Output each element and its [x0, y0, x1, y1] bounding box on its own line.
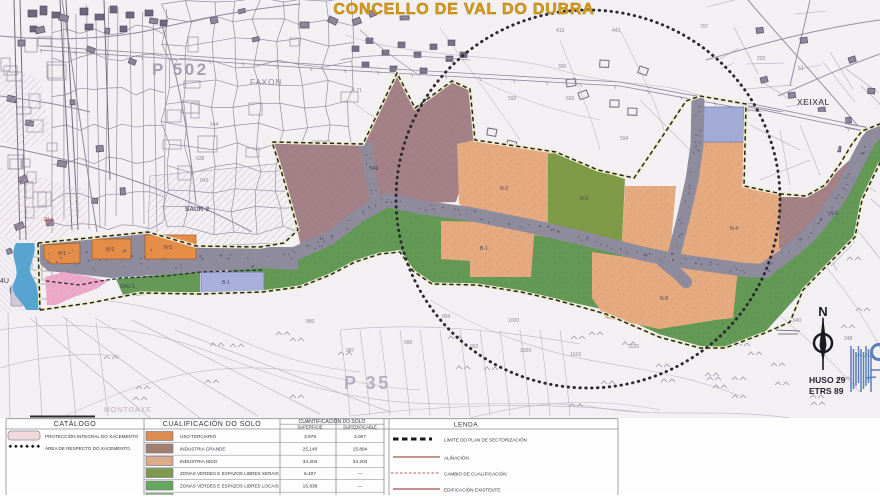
svg-text:4U: 4U	[0, 278, 9, 285]
svg-text:CATÁLOGO: CATÁLOGO	[54, 419, 96, 428]
svg-text:MONTOAXE: MONTOAXE	[104, 407, 152, 414]
svg-text:P 35: P 35	[344, 373, 391, 393]
svg-text:987: 987	[346, 348, 355, 354]
svg-text:Nº2: Nº2	[106, 247, 114, 253]
svg-text:SUP.EDIFICABLE: SUP.EDIFICABLE	[343, 424, 377, 429]
svg-text:8U: 8U	[44, 217, 53, 224]
svg-text:994: 994	[442, 314, 451, 320]
svg-text:SAU-1: SAU-1	[120, 284, 135, 290]
svg-text:Nº3: Nº3	[164, 245, 172, 251]
svg-text:INDUSTRIA NIDO: INDUSTRIA NIDO	[180, 459, 218, 464]
svg-text:SUPERFICIE: SUPERFICIE	[297, 424, 322, 429]
svg-text:HUSO 29: HUSO 29	[809, 375, 846, 385]
svg-text:34.203: 34.203	[303, 459, 318, 465]
svg-text:443: 443	[612, 28, 621, 34]
svg-text:P 502: P 502	[152, 60, 209, 79]
svg-text:3.979: 3.979	[304, 434, 316, 440]
svg-text:300: 300	[558, 64, 567, 70]
svg-text:592: 592	[508, 96, 517, 102]
svg-text:15.838: 15.838	[303, 484, 318, 490]
svg-text:Nº1: Nº1	[58, 251, 66, 257]
svg-text:707: 707	[700, 24, 709, 30]
svg-text:CONCELLO DE VAL DO DUBRA: CONCELLO DE VAL DO DUBRA	[333, 1, 594, 18]
svg-text:ÁREA DE RESPECTO DO XACEMENTO: ÁREA DE RESPECTO DO XACEMENTO	[45, 445, 130, 451]
svg-text:CAMBIO DE CUALIFICACIÓN: CAMBIO DE CUALIFICACIÓN	[444, 471, 507, 477]
svg-text:LÍMITE DO PLAN DE SECTORIZACIÓ: LÍMITE DO PLAN DE SECTORIZACIÓN	[444, 437, 527, 443]
svg-text:ETRS 89: ETRS 89	[809, 386, 844, 396]
svg-text:N-8: N-8	[660, 296, 668, 302]
svg-text:546: 546	[370, 166, 379, 172]
svg-text:ZONAS VERDES E ESPAZOS LIBRES: ZONAS VERDES E ESPAZOS LIBRES XERAIS	[180, 471, 279, 476]
svg-text:LENDA: LENDA	[454, 422, 478, 429]
svg-text:202: 202	[757, 56, 766, 62]
svg-text:B-1: B-1	[480, 246, 488, 252]
svg-text:1000: 1000	[508, 318, 519, 324]
svg-text:N-2: N-2	[500, 186, 508, 192]
svg-text:N-5: N-5	[830, 211, 838, 217]
svg-text:N-3: N-3	[580, 196, 588, 202]
svg-text:SAUR-2: SAUR-2	[185, 206, 210, 213]
svg-text:638: 638	[196, 156, 205, 162]
svg-text:ALIÑACIÓN: ALIÑACIÓN	[444, 455, 469, 461]
svg-text:PROTECCIÓN INTEGRAL DO XACEMEN: PROTECCIÓN INTEGRAL DO XACEMENTO	[45, 433, 139, 439]
svg-text:4.71: 4.71	[352, 88, 362, 94]
svg-text:1016: 1016	[570, 352, 581, 358]
svg-text:FAXON: FAXON	[250, 78, 282, 87]
svg-text:N-4: N-4	[730, 226, 738, 232]
svg-text:EDIFICACIÓN EXISTENTE: EDIFICACIÓN EXISTENTE	[444, 487, 500, 493]
svg-text:ZONAS VERDES E ESPAZOS LIBRES: ZONAS VERDES E ESPAZOS LIBRES LOCAIS	[180, 484, 279, 489]
svg-text:1026: 1026	[628, 344, 639, 350]
svg-text:USO TERCIARIO: USO TERCIARIO	[180, 434, 217, 439]
svg-text:413: 413	[556, 28, 565, 34]
svg-text:248: 248	[844, 336, 853, 342]
svg-text:25.140: 25.140	[303, 447, 318, 453]
svg-text:XEIXAL: XEIXAL	[797, 97, 830, 107]
svg-text:51: 51	[798, 66, 804, 72]
svg-text:543: 543	[200, 178, 209, 184]
svg-text:6.407: 6.407	[304, 471, 316, 477]
svg-text:990: 990	[404, 340, 413, 346]
svg-text:34.203: 34.203	[353, 459, 368, 465]
svg-text:INDUSTRIA GRANDE: INDUSTRIA GRANDE	[180, 447, 225, 452]
svg-text:594: 594	[620, 136, 629, 142]
svg-text:593: 593	[566, 96, 575, 102]
svg-text:544: 544	[210, 122, 219, 128]
svg-text:980: 980	[306, 319, 315, 325]
svg-text:CUALIFICACIÓN DO SOLO: CUALIFICACIÓN DO SOLO	[163, 419, 261, 428]
svg-text:3.007: 3.007	[354, 434, 366, 440]
svg-text:B-1: B-1	[222, 280, 230, 286]
svg-text:—: —	[358, 485, 363, 490]
svg-text:1009: 1009	[520, 348, 531, 354]
svg-text:—: —	[358, 472, 363, 477]
svg-text:15.894: 15.894	[353, 447, 368, 453]
